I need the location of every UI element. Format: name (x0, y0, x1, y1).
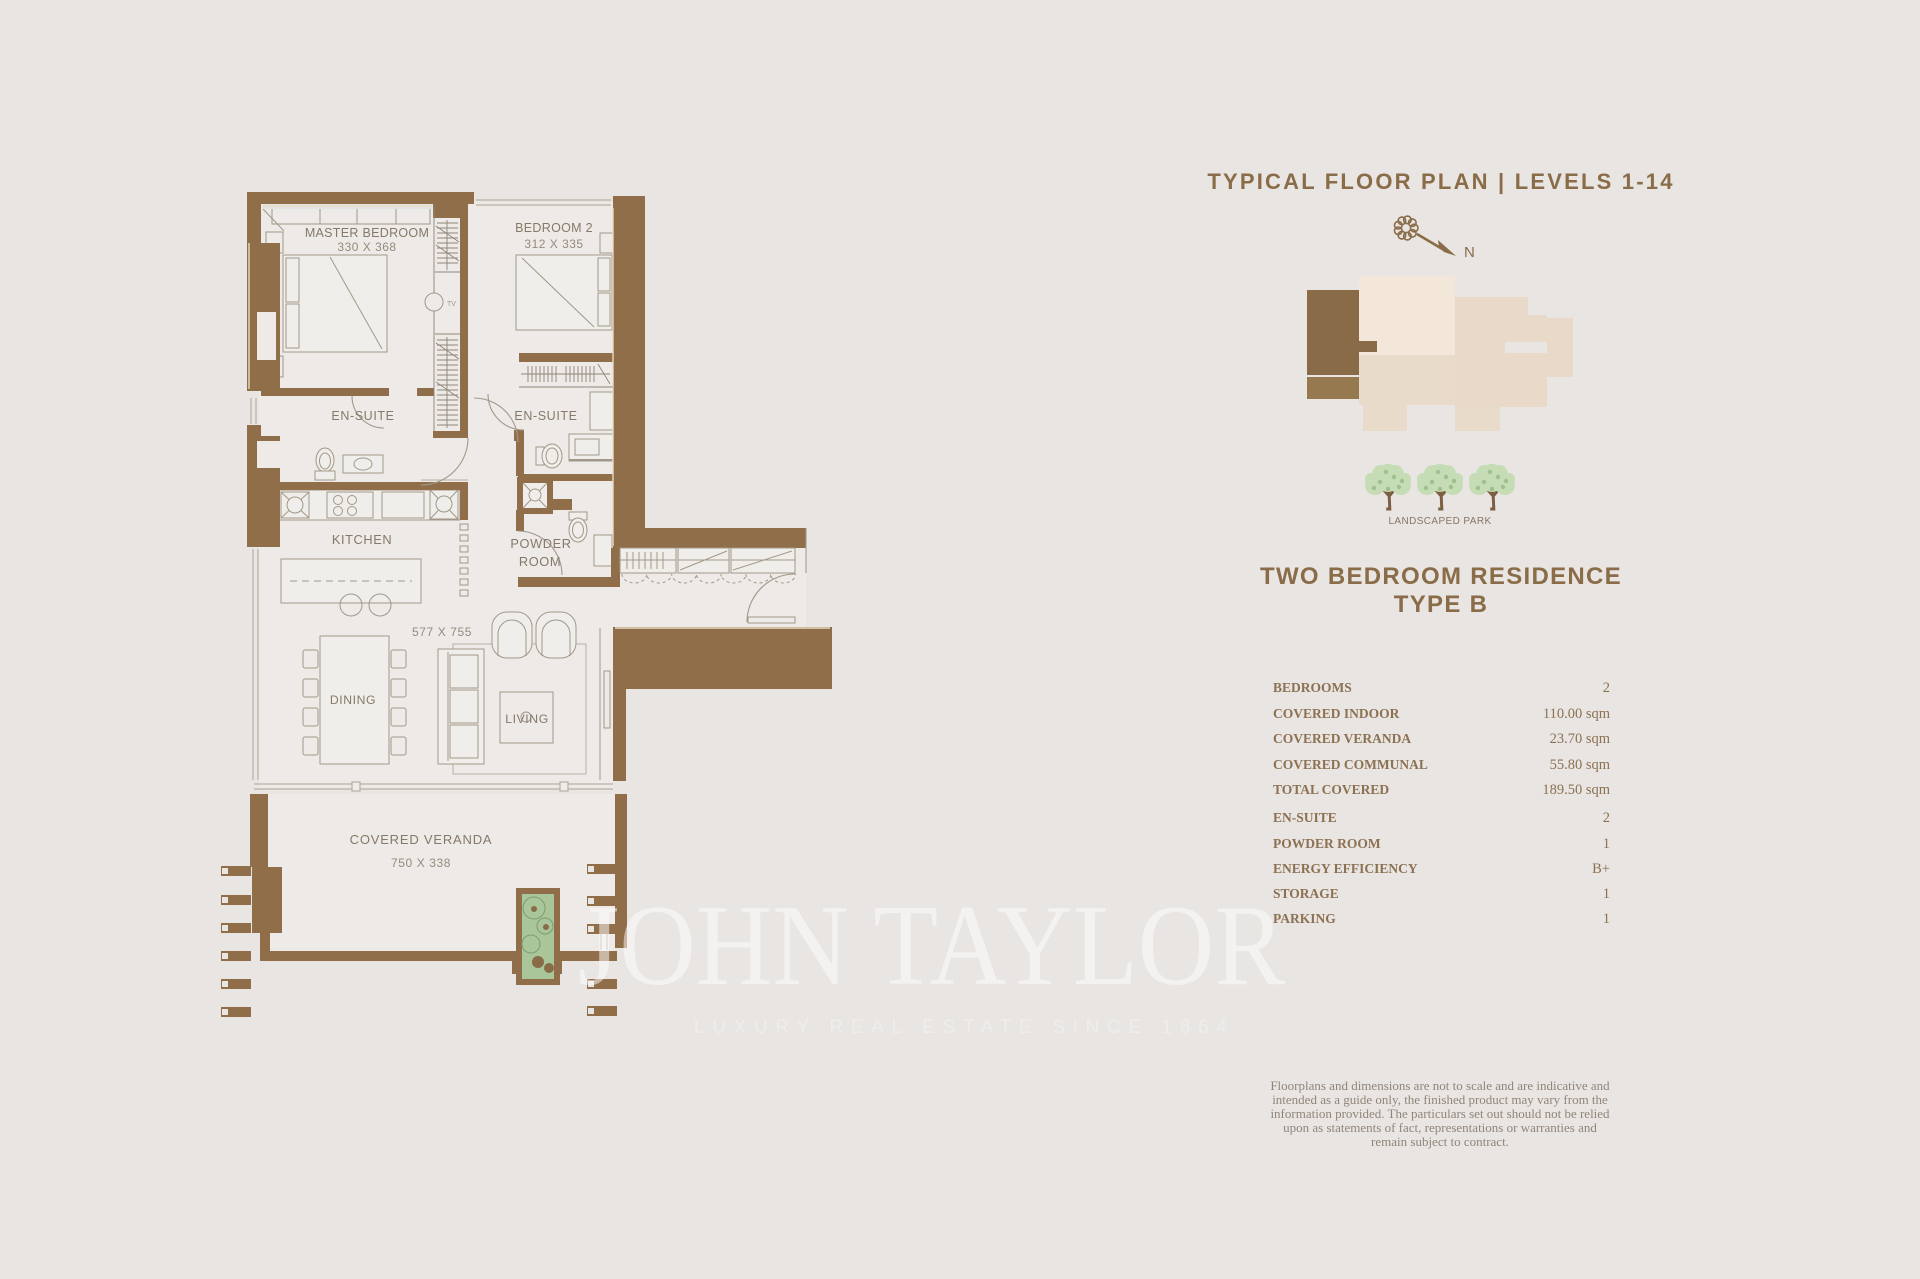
svg-text:BEDROOM 2: BEDROOM 2 (515, 221, 593, 235)
svg-text:COVERED VERANDA: COVERED VERANDA (1273, 731, 1411, 746)
svg-text:330 X 368: 330 X 368 (337, 240, 396, 254)
svg-text:B+: B+ (1592, 861, 1610, 877)
svg-text:JOHN TAYLOR: JOHN TAYLOR (578, 882, 1285, 1009)
svg-text:EN-SUITE: EN-SUITE (1273, 810, 1337, 825)
svg-text:312 X 335: 312 X 335 (524, 237, 583, 251)
svg-text:23.70 sqm: 23.70 sqm (1550, 731, 1611, 747)
svg-text:KITCHEN: KITCHEN (332, 532, 392, 547)
svg-text:1: 1 (1603, 886, 1610, 902)
svg-text:189.50 sqm: 189.50 sqm (1542, 782, 1610, 798)
svg-text:COVERED COMMUNAL: COVERED COMMUNAL (1273, 757, 1428, 772)
svg-text:TV: TV (447, 301, 456, 308)
svg-text:55.80 sqm: 55.80 sqm (1550, 757, 1611, 773)
svg-text:ROOM: ROOM (519, 554, 561, 569)
svg-text:LANDSCAPED PARK: LANDSCAPED PARK (1388, 516, 1491, 527)
svg-text:BEDROOMS: BEDROOMS (1273, 680, 1352, 695)
svg-text:MASTER BEDROOM: MASTER BEDROOM (305, 226, 429, 240)
svg-text:TOTAL COVERED: TOTAL COVERED (1273, 782, 1389, 797)
svg-text:POWDER ROOM: POWDER ROOM (1273, 836, 1381, 851)
svg-text:POWDER: POWDER (510, 536, 571, 551)
svg-text:information provided. The part: information provided. The particulars se… (1270, 1106, 1610, 1121)
svg-text:intended as a guide only, the: intended as a guide only, the finished p… (1272, 1092, 1608, 1107)
svg-text:Floorplans and dimensions are: Floorplans and dimensions are not to sca… (1270, 1078, 1610, 1093)
svg-text:110.00 sqm: 110.00 sqm (1543, 706, 1611, 722)
svg-text:N: N (1464, 244, 1476, 261)
svg-text:577 X 755: 577 X 755 (412, 625, 472, 639)
svg-text:DINING: DINING (330, 693, 376, 707)
svg-text:COVERED VERANDA: COVERED VERANDA (350, 832, 493, 847)
svg-text:TYPE B: TYPE B (1394, 591, 1488, 618)
svg-text:remain subject to contract.: remain subject to contract. (1371, 1134, 1509, 1149)
svg-text:1: 1 (1603, 911, 1610, 927)
svg-text:LIVING: LIVING (505, 712, 549, 726)
svg-text:2: 2 (1603, 680, 1610, 696)
svg-text:upon as statements of fact, re: upon as statements of fact, representati… (1283, 1120, 1597, 1135)
svg-text:750 X 338: 750 X 338 (391, 856, 451, 870)
svg-text:EN-SUITE: EN-SUITE (331, 409, 394, 423)
svg-text:TWO BEDROOM RESIDENCE: TWO BEDROOM RESIDENCE (1260, 563, 1622, 590)
svg-text:COVERED INDOOR: COVERED INDOOR (1273, 706, 1400, 721)
svg-text:TYPICAL FLOOR PLAN | LEVELS 1-: TYPICAL FLOOR PLAN | LEVELS 1-14 (1207, 169, 1674, 194)
svg-text:ENERGY EFFICIENCY: ENERGY EFFICIENCY (1273, 861, 1418, 876)
svg-text:2: 2 (1603, 810, 1610, 826)
svg-text:1: 1 (1603, 836, 1610, 852)
svg-text:EN-SUITE: EN-SUITE (514, 409, 577, 423)
